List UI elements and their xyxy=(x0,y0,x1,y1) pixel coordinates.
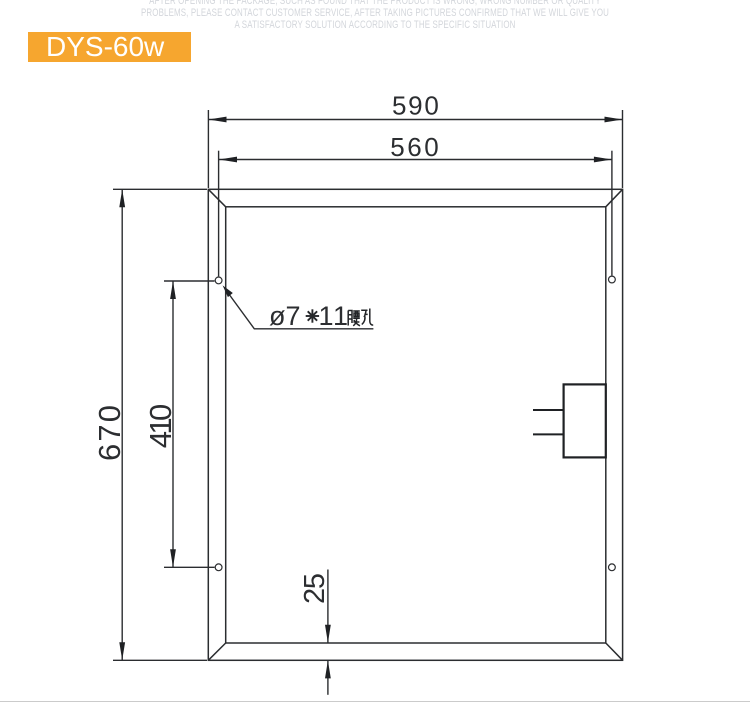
svg-text:670: 670 xyxy=(92,405,127,461)
svg-text:ø7: ø7 xyxy=(269,301,301,331)
svg-text:25: 25 xyxy=(299,573,331,604)
svg-text:11: 11 xyxy=(319,301,350,331)
svg-text:590: 590 xyxy=(392,91,439,121)
svg-text:560: 560 xyxy=(390,132,439,162)
svg-text:410: 410 xyxy=(143,404,178,449)
